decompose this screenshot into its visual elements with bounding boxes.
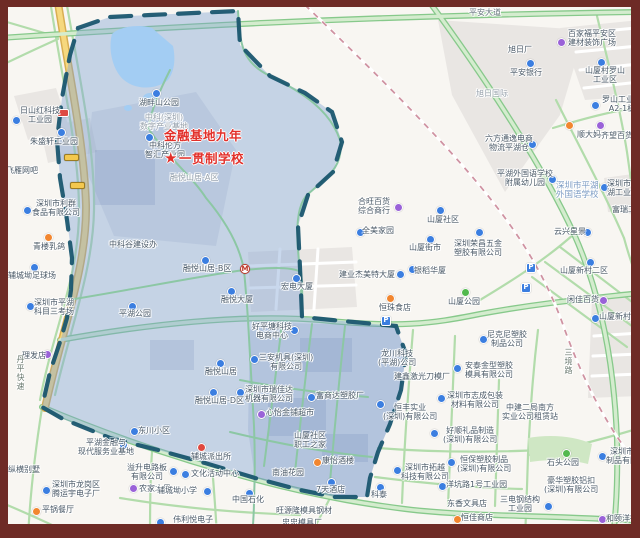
poi-marker-green-icon[interactable] [461, 288, 470, 297]
map-label[interactable]: 辅城坳小学 [157, 486, 197, 495]
map-label[interactable]: 龙川科技(平湖)公司 [378, 349, 416, 367]
map-label-line: 湖畔山公园 [139, 98, 179, 107]
map-label-line: 恒佳商店 [461, 513, 493, 522]
map-label-line: 全美家园 [362, 226, 394, 235]
map-label[interactable]: 飞雁网吧 [6, 166, 38, 175]
map-label-line: 心怡金铺超市 [266, 408, 314, 417]
map-label-line: 好顺礼品制造 [443, 426, 497, 435]
map-label-line: 恒丰实业 [383, 403, 437, 412]
map-label[interactable]: 平湖外国语学校附属幼儿园 [497, 169, 553, 187]
map-label[interactable]: 深圳市瑞佳达机器有限公司 [245, 385, 293, 403]
parking-icon[interactable]: P [381, 316, 391, 326]
metro-station-icon[interactable]: M [240, 264, 250, 274]
map-label-line: 恒珠食店 [379, 303, 411, 312]
poi-marker-blue-icon[interactable] [430, 429, 439, 438]
map-label[interactable]: 石头公园 [547, 458, 579, 467]
map-label-line: 深圳市龙岗区 [52, 480, 100, 489]
map-label-line: 7天酒店 [316, 485, 345, 494]
map-label-line: 中科(深圳) [140, 113, 188, 122]
poi-marker-blue-icon[interactable] [181, 470, 190, 479]
map-label[interactable]: 山厦新村 [599, 312, 631, 321]
map-label[interactable]: 山厦新村二区 [560, 266, 608, 275]
parking-icon[interactable]: P [526, 263, 536, 273]
poi-marker-blue-icon[interactable] [203, 487, 212, 496]
map-label[interactable]: 建业杰美特大厦 [339, 270, 395, 279]
map-label-line: 辅城坳足球场 [8, 271, 56, 280]
map-label[interactable]: 六方通逸电商物流平湖仓 [485, 134, 533, 152]
map-label[interactable]: 山厦社区职工之家 [294, 431, 326, 449]
frame-right [631, 0, 640, 538]
parking-icon[interactable]: P [521, 283, 531, 293]
map-label-line: 银稻华厦 [414, 266, 446, 275]
map-label-line: 飞雁网吧 [6, 166, 38, 175]
map-label-line: 工业园 [500, 504, 540, 513]
map-label-line: 理发店 [22, 351, 46, 360]
map-label[interactable]: 闲佳百货 [567, 295, 599, 304]
poi-marker-purple-icon[interactable] [557, 38, 566, 47]
map-label-line: 山厦新村 [599, 312, 631, 321]
poi-marker-orange-icon[interactable] [32, 507, 41, 516]
map-label[interactable]: 深圳市平湖外国语学校 [556, 182, 599, 200]
poi-marker-blue-icon[interactable] [169, 467, 178, 476]
map-label-line: 职工之家 [294, 440, 326, 449]
map-label[interactable]: 山厦街市 [409, 243, 441, 252]
poi-marker-purple-icon[interactable] [257, 410, 266, 419]
map-label-line: (深圳)有限公司 [443, 435, 497, 444]
map-label-line: 三境路 [564, 348, 573, 375]
badge-yellow-icon[interactable] [70, 182, 85, 189]
map-label-line: 宏电大厦 [281, 282, 313, 291]
map-label[interactable]: 恒保塑胶制品(深圳)有限公司 [457, 455, 511, 473]
poi-marker-orange-icon[interactable] [44, 233, 53, 242]
map-label[interactable]: 辅城坳足球场 [8, 271, 56, 280]
map-label[interactable]: 恒珠食店 [379, 303, 411, 312]
badge-yellow-icon[interactable] [64, 154, 79, 161]
map-label-line: 山厦街市 [409, 243, 441, 252]
map-label-line: 顺大妈 [577, 130, 601, 139]
map-label-line: 康怡酒楼 [322, 456, 354, 465]
map-label[interactable]: 中科谷建设办 [109, 240, 157, 249]
map-label-line: 制品公司 [487, 339, 527, 348]
map-label[interactable]: 旺源隆模具钢材 [276, 506, 332, 515]
school-name-line1: 金融基地九年 [164, 129, 244, 143]
poi-marker-blue-icon[interactable] [526, 59, 535, 68]
map-label-line: 龙川科技 [378, 349, 416, 358]
map-label[interactable]: 三电钢结构工业园 [500, 495, 540, 513]
map-label[interactable]: 青楼乳鸽 [33, 242, 65, 251]
map-label-line: 科技有限公司 [401, 472, 449, 481]
poi-marker-purple-icon[interactable] [596, 121, 605, 130]
map-label[interactable]: 理发店 [22, 351, 46, 360]
map-label-line: 六方通逸电商 [485, 134, 533, 143]
map-base-layer [0, 0, 640, 538]
map-label-line: 中建二局南方 [502, 403, 558, 412]
poi-marker-blue-icon[interactable] [436, 206, 445, 215]
map-label[interactable]: 中国石化 [232, 495, 264, 504]
map-label[interactable]: 深圳市利群食品有限公司 [32, 199, 80, 217]
poi-marker-blue-icon[interactable] [152, 89, 161, 98]
poi-marker-orange-icon[interactable] [313, 458, 322, 467]
map-label[interactable]: 康怡酒楼 [322, 456, 354, 465]
map-label-line: 电商中心 [252, 331, 292, 340]
map-label-line: 三安机具(深圳) [259, 353, 313, 362]
poi-marker-blue-icon[interactable] [57, 128, 66, 137]
map-label-line: (深圳)有限公司 [383, 412, 437, 421]
map-label[interactable]: 齐望百货 [601, 131, 633, 140]
map-label-line: 建鑫激光刀模厂 [394, 372, 450, 381]
school-star-icon: ★ [164, 149, 178, 167]
map-label-line: 南油花园 [272, 468, 304, 477]
map-label-line: 山厦社区 [427, 215, 459, 224]
map-label[interactable]: 尼克尼塑胶制品公司 [487, 330, 527, 348]
map-label-line: 融悦山居 [205, 367, 237, 376]
poi-marker-blue-icon[interactable] [591, 101, 600, 110]
map-label[interactable]: 中建二局南方实业公司租赁站 [502, 403, 558, 421]
map-label-line: 豪华塑胶铝扣 [544, 476, 598, 485]
map-label[interactable]: 山厦村罗山工业区 [585, 66, 625, 84]
map-label-line: 山厦公园 [448, 297, 480, 306]
map-label[interactable]: 平锅餐厅 [42, 505, 74, 514]
map-label-line: 平湖外国语学校 [497, 169, 553, 178]
map-label-line: (深圳)有限公司 [544, 485, 598, 494]
map-label[interactable]: 宏电大厦 [281, 282, 313, 291]
poi-marker-blue-icon[interactable] [475, 228, 484, 237]
map-label-line: 平安大道 [469, 8, 501, 17]
map-label[interactable]: 旭日国际 [476, 89, 508, 98]
map-label[interactable]: 融悦山居-B区 [183, 264, 231, 273]
map-label[interactable]: 溢升电路板有限公司 [127, 463, 167, 481]
map-label[interactable]: 湖畔山公园 [139, 98, 179, 107]
map-label[interactable]: 恒佳商店 [461, 513, 493, 522]
map-label-line: 工业区 [585, 75, 625, 84]
poi-marker-purple-icon[interactable] [599, 296, 608, 305]
map-label-line: 模具有限公司 [465, 370, 513, 379]
map-label-line: 安泰金型塑胶 [465, 361, 513, 370]
poi-marker-green-icon[interactable] [562, 449, 571, 458]
poi-marker-blue-icon[interactable] [250, 355, 259, 364]
map-label[interactable]: 朱盛轩工业园 [30, 137, 78, 146]
map-label[interactable]: 合旺百货综合商行 [358, 197, 390, 215]
map-label[interactable]: 深圳市龙岗区腾运宇电子厂 [52, 480, 100, 498]
map-label-line: 合旺百货 [358, 197, 390, 206]
map-label-line: 融悦山居-A区 [170, 173, 218, 182]
map-label-line: 中国石化 [232, 495, 264, 504]
poi-marker-purple-icon[interactable] [394, 203, 403, 212]
map-label[interactable]: 山厦公园 [448, 297, 480, 306]
map-label-line: 纵横别墅 [8, 465, 40, 474]
map-label-line: 食品有限公司 [32, 208, 80, 217]
poi-marker-blue-icon[interactable] [23, 206, 32, 215]
map-label[interactable]: 丹平快速 [16, 355, 25, 391]
map-label-line: 东香文具店 [447, 499, 487, 508]
map-label[interactable]: 心怡金铺超市 [266, 408, 314, 417]
poi-marker-blue-icon[interactable] [307, 393, 316, 402]
map-label[interactable]: 豪华塑胶铝扣(深圳)有限公司 [544, 476, 598, 494]
map-label-line: 深圳市平湖 [34, 298, 74, 307]
map-label[interactable]: 平湖金融与现代服务业基地 [78, 438, 134, 456]
map-label-line: 塑胶有限公司 [454, 248, 502, 257]
map-label[interactable]: 南油花园 [272, 468, 304, 477]
map-label[interactable]: 安泰金型塑胶模具有限公司 [465, 361, 513, 379]
map-label-line: 好平塘科技 [252, 322, 292, 331]
map-label[interactable]: 辅城派出所 [191, 452, 231, 461]
map-label-line: 丹平快速 [16, 355, 25, 391]
map-label[interactable]: 好顺礼品制造(深圳)有限公司 [443, 426, 497, 444]
map-label-line: 深圳市利群 [32, 199, 80, 208]
map-label-line: 实业公司租赁站 [502, 412, 558, 421]
map-label[interactable]: 深圳市平湖科目三考场 [34, 298, 74, 316]
poi-marker-blue-icon[interactable] [544, 502, 553, 511]
map-label-line: 溢升电路板 [127, 463, 167, 472]
frame-bottom [0, 524, 640, 538]
map-label-line: 科泰 [371, 490, 387, 499]
map-label[interactable]: 洋坑路1号工业园 [446, 480, 507, 489]
school-district-label[interactable]: 金融基地九年 ★一贯制学校 [164, 129, 244, 166]
map-label-line: 东川小区 [138, 426, 170, 435]
map-label[interactable]: 平安大道 [469, 8, 501, 17]
map-label-line: 辅城坳小学 [157, 486, 197, 495]
map-label-line: 闲佳百货 [567, 295, 599, 304]
map-label-line: 日山红科技 [20, 106, 60, 115]
map-label-line: 尼克尼塑胶 [487, 330, 527, 339]
map-label-line: 平湖金融与 [78, 438, 134, 447]
map-label-line: 伟利悦电子 [166, 515, 220, 524]
map-label-line: 综合商行 [358, 206, 390, 215]
map-label-line: 石头公园 [547, 458, 579, 467]
map-label-line: 山厦新村二区 [560, 266, 608, 275]
map-label-line: 恒保塑胶制品 [457, 455, 511, 464]
map-label-line: 有限公司 [127, 472, 167, 481]
map-label-line: 云兴星景 [554, 227, 586, 236]
map-label-line: 辅城派出所 [191, 452, 231, 461]
map-label[interactable]: 三境路 [564, 348, 573, 375]
map-label-line: 工业园 [20, 115, 60, 124]
map-label[interactable]: 全美家园 [362, 226, 394, 235]
map-label-line: 深圳市拓越 [401, 463, 449, 472]
frame-top [0, 0, 640, 7]
poi-marker-blue-icon[interactable] [42, 486, 51, 495]
map-label-line: 平安银行 [510, 68, 542, 77]
map-label-line: 中科谷建设办 [109, 240, 157, 249]
map-label-line: 融悦山居-B区 [183, 264, 231, 273]
map-label[interactable]: 深圳市志成包装材料有限公司 [447, 391, 503, 409]
poi-marker-blue-icon[interactable] [396, 270, 405, 279]
map-label[interactable]: 富商达塑胶厂 [316, 391, 364, 400]
map-label-line: 旭日国际 [476, 89, 508, 98]
map-label[interactable]: 科泰 [371, 490, 387, 499]
map-label[interactable]: 融悦山居-A区 [170, 173, 218, 182]
map-label[interactable]: 融悦山居 [205, 367, 237, 376]
map-label-line: (深圳)有限公司 [457, 464, 511, 473]
poi-marker-blue-icon[interactable] [453, 364, 462, 373]
map-label-line: 深圳市志成包装 [447, 391, 503, 400]
poi-marker-blue-icon[interactable] [437, 394, 446, 403]
map-label-line: 三电钢结构 [500, 495, 540, 504]
map-label[interactable]: 银稻华厦 [414, 266, 446, 275]
map-label[interactable]: 百家福平安区建材装饰广场 [568, 29, 616, 47]
map-label-line: 机器有限公司 [245, 394, 293, 403]
map-label-line: 旭日厂 [508, 45, 532, 54]
map-label-line: 物流平湖仓 [485, 143, 533, 152]
map-label-line: 建业杰美特大厦 [339, 270, 395, 279]
map-canvas[interactable]: MPPP 日山红科技工业园朱盛轩工业园飞雁网吧深圳市利群食品有限公司青楼乳鸽辅城… [0, 0, 640, 538]
map-label[interactable]: 深圳市拓越科技有限公司 [401, 463, 449, 481]
map-label-line: 朱盛轩工业园 [30, 137, 78, 146]
map-label[interactable]: 顺大妈 [577, 130, 601, 139]
map-label-line: 融悦大厦 [221, 295, 253, 304]
map-label[interactable]: 建鑫激光刀模厂 [394, 372, 450, 381]
map-label[interactable]: 融悦大厦 [221, 295, 253, 304]
map-label-line: 建材装饰广场 [568, 38, 616, 47]
map-label[interactable]: 云兴星景 [554, 227, 586, 236]
poi-marker-orange-icon[interactable] [565, 121, 574, 130]
map-label-line: 材料有限公司 [447, 400, 503, 409]
map-label-line: (平湖)公司 [378, 358, 416, 367]
map-label-line: 百家福平安区 [568, 29, 616, 38]
map-label-line: 现代服务业基地 [78, 447, 134, 456]
map-label-line: 有限公司 [259, 362, 313, 371]
map-label-line: 山厦村罗山 [585, 66, 625, 75]
map-label-line: 青楼乳鸽 [33, 242, 65, 251]
map-label-line: 齐望百货 [601, 131, 633, 140]
map-label-line: 附属幼儿园 [497, 178, 553, 187]
frame-left [0, 0, 8, 538]
poi-marker-purple-icon[interactable] [129, 484, 138, 493]
map-label-line: 科目三考场 [34, 307, 74, 316]
map-label[interactable]: 恒丰实业(深圳)有限公司 [383, 403, 437, 421]
poi-marker-red-icon[interactable] [197, 443, 206, 452]
map-label[interactable]: 旭日厂 [508, 45, 532, 54]
map-label-line: 山厦社区 [294, 431, 326, 440]
poi-marker-orange-icon[interactable] [386, 294, 395, 303]
map-label-line: 深圳荣昌五金 [454, 239, 502, 248]
map-label-line: 腾运宇电子厂 [52, 489, 100, 498]
map-label-line: 深圳市瑞佳达 [245, 385, 293, 394]
map-label-line: 融悦山居-D区 [195, 396, 244, 405]
map-label[interactable]: 平安银行 [510, 68, 542, 77]
map-label-line: 富商达塑胶厂 [316, 391, 364, 400]
map-label-line: 平湖公园 [119, 309, 151, 318]
map-label[interactable]: 山厦社区 [427, 215, 459, 224]
map-label[interactable]: 日山红科技工业园 [20, 106, 60, 124]
map-label-line: 洋坑路1号工业园 [446, 480, 507, 489]
map-label[interactable]: 好平塘科技电商中心 [252, 322, 292, 340]
map-label[interactable]: 融悦山居-D区 [195, 396, 244, 405]
map-label[interactable]: 东川小区 [138, 426, 170, 435]
school-name-line2: ★一贯制学校 [164, 151, 244, 166]
map-label[interactable]: 平湖公园 [119, 309, 151, 318]
map-label-line: 文化活动中心 [191, 469, 239, 478]
map-label-line: 平锅餐厅 [42, 505, 74, 514]
map-label[interactable]: 三安机具(深圳)有限公司 [259, 353, 313, 371]
map-label[interactable]: 纵横别墅 [8, 465, 40, 474]
map-label-line: 旺源隆模具钢材 [276, 506, 332, 515]
map-label[interactable]: 深圳荣昌五金塑胶有限公司 [454, 239, 502, 257]
map-label[interactable]: 文化活动中心 [191, 469, 239, 478]
map-label-line: 外国语学校 [556, 191, 599, 200]
map-label[interactable]: 东香文具店 [447, 499, 487, 508]
map-label[interactable]: 7天酒店 [316, 485, 345, 494]
